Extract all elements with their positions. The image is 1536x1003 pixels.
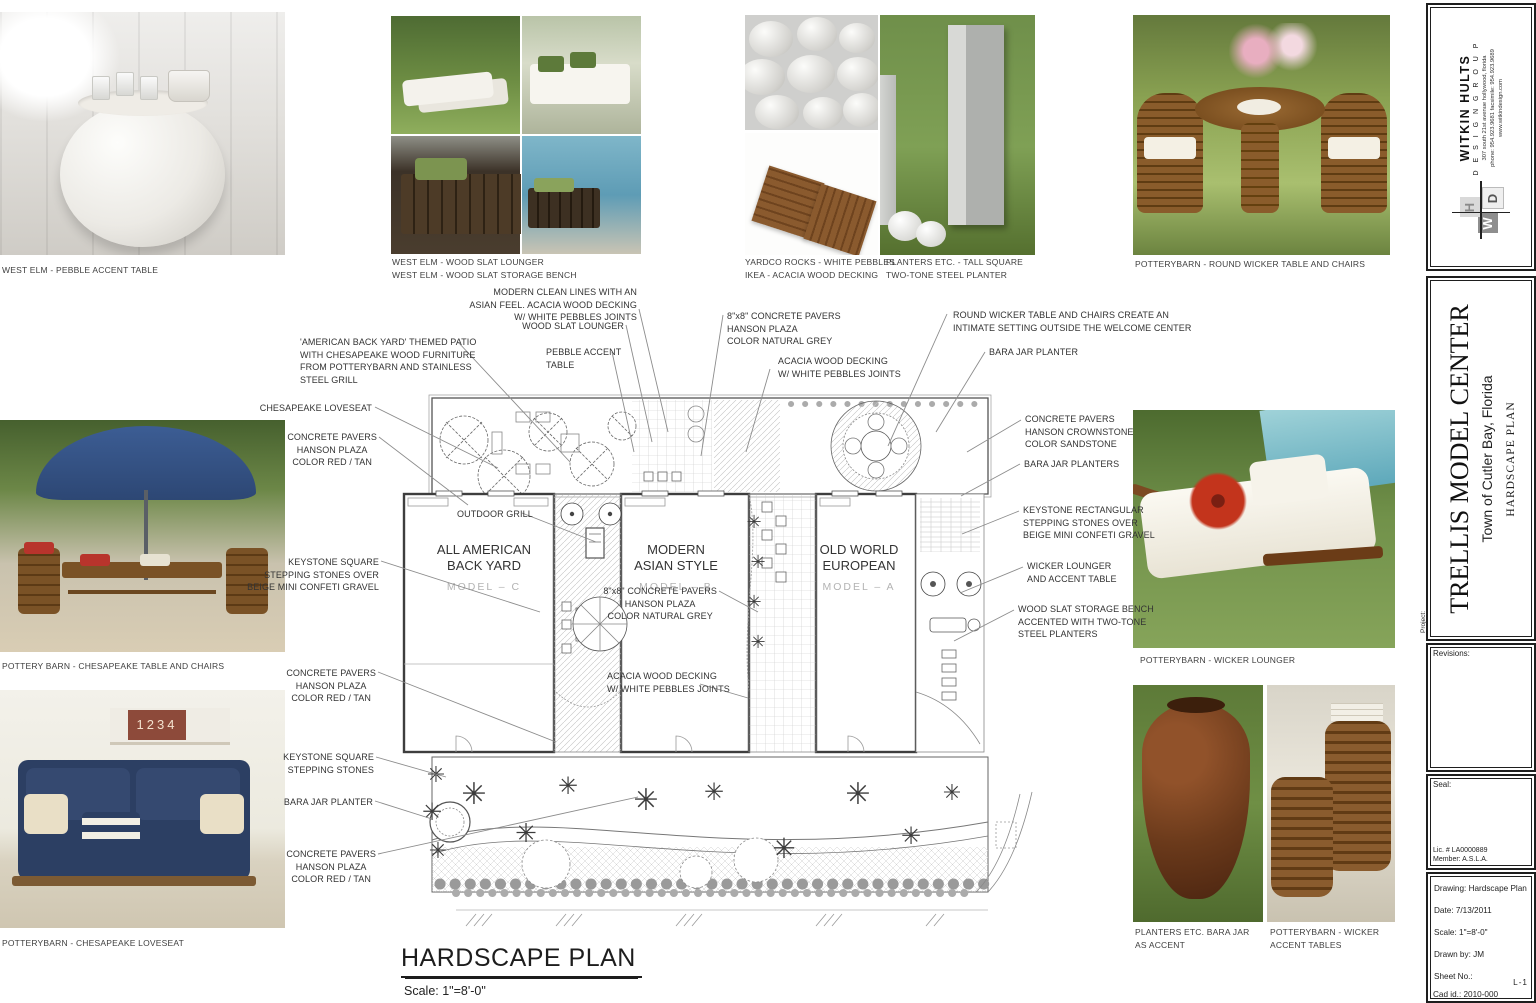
annotation-keystone-rectangular: KEYSTONE RECTANGULAR STEPPING STONES OVE… xyxy=(1023,504,1155,542)
photo-acacia-decking xyxy=(745,133,878,255)
photo-west-elm-collage xyxy=(390,15,642,255)
model-a-label: MODEL – A xyxy=(822,581,895,593)
model-a-name-2: EUROPEAN xyxy=(823,558,896,573)
photo-steel-planter xyxy=(880,15,1035,255)
svg-text:✳: ✳ xyxy=(633,784,658,817)
drawn-by: Drawn by: JM xyxy=(1434,950,1484,959)
sheet-number: L-1 xyxy=(1513,978,1528,987)
model-c-name-1: ALL AMERICAN xyxy=(437,542,531,557)
photo-pebble-accent-table xyxy=(0,12,285,255)
photo-white-pebbles xyxy=(745,15,878,130)
svg-text:✳: ✳ xyxy=(515,818,537,848)
annotation-bara-jar-planter-top: BARA JAR PLANTER xyxy=(989,346,1078,359)
firm-name: WITKIN HULTS xyxy=(1458,41,1472,176)
annotation-pavers-red-tan-1: CONCRETE PAVERS HANSON PLAZA COLOR RED /… xyxy=(287,431,377,469)
plan-scale: Scale: 1"=8'-0" xyxy=(404,984,486,998)
caption-steel-planter: PLANTERS ETC. - TALL SQUARE TWO-TONE STE… xyxy=(886,256,1023,282)
caption-pebble-table: WEST ELM - PEBBLE ACCENT TABLE xyxy=(2,264,158,277)
svg-text:✳: ✳ xyxy=(746,592,761,612)
annotation-wood-slat-lounger: WOOD SLAT LOUNGER xyxy=(522,320,624,333)
firm-website: www.witkindesign.com xyxy=(1498,41,1504,176)
photo-bara-jar xyxy=(1133,685,1263,922)
title-block-info-box: Drawing: Hardscape Plan Date: 7/13/2011 … xyxy=(1426,872,1536,1003)
glass xyxy=(140,76,158,100)
annotation-chesapeake-loveseat: CHESAPEAKE LOVESEAT xyxy=(260,402,372,415)
annotation-pavers-crownstone: CONCRETE PAVERS HANSON CROWNSTONE COLOR … xyxy=(1025,413,1134,451)
svg-text:✳: ✳ xyxy=(845,778,870,811)
cad-id: Cad id.: 2010-000 xyxy=(1433,990,1498,999)
pebble-table xyxy=(60,102,225,247)
sheet-no-label: Sheet No.: xyxy=(1434,972,1473,981)
monogram-d: D xyxy=(1482,187,1504,209)
svg-text:✳: ✳ xyxy=(901,823,921,850)
model-b-name-1: MODERN xyxy=(647,542,705,557)
svg-text:✳: ✳ xyxy=(427,762,445,787)
title-block-project-box: TRELLIS MODEL CENTER Town of Cutler Bay,… xyxy=(1426,276,1536,641)
title-block-seal-box: Seal: Lic. # LA0000889 Member: A.S.L.A. xyxy=(1426,774,1536,870)
annotation-keystone-over-gravel: KEYSTONE SQUARE STEPPING STONES OVER BEI… xyxy=(247,556,379,594)
firm-phone: phone: 954.923.9681 facsimile: 954.923.9… xyxy=(1490,41,1496,176)
annotation-bara-jar-planter-left: BARA JAR PLANTER xyxy=(284,796,373,809)
drawing-name: Drawing: Hardscape Plan xyxy=(1434,884,1527,893)
title-block-firm-box: W H D WITKIN HULTS D E S I G N G R O U P… xyxy=(1426,3,1536,271)
firm-monogram: W H D xyxy=(1458,187,1504,233)
svg-text:✳: ✳ xyxy=(558,773,578,800)
annotation-wicker-lounger-note: WICKER LOUNGER AND ACCENT TABLE xyxy=(1027,560,1117,585)
photo-daybed xyxy=(521,15,642,135)
annotation-modern-clean-lines: MODERN CLEAN LINES WITH AN ASIAN FEEL. A… xyxy=(469,286,637,324)
photo-round-wicker-table xyxy=(1133,15,1390,255)
white-pot xyxy=(168,70,210,102)
svg-text:✳: ✳ xyxy=(461,778,486,811)
monogram-h: H xyxy=(1460,197,1480,217)
annotation-themed-patio: 'AMERICAN BACK YARD' THEMED PATIO WITH C… xyxy=(300,336,476,386)
model-a-name-1: OLD WORLD xyxy=(820,542,899,557)
svg-text:✳: ✳ xyxy=(704,779,724,806)
model-b-name-2: ASIAN STYLE xyxy=(634,558,718,573)
annotation-acacia-decking-mid: ACACIA WOOD DECKING W/ WHITE PEBBLES JOI… xyxy=(607,670,730,695)
project-location: Town of Cutler Bay, Florida xyxy=(1479,286,1495,631)
caption-chesapeake-table: POTTERY BARN - CHESAPEAKE TABLE AND CHAI… xyxy=(2,660,224,673)
glass xyxy=(116,72,134,96)
sheet-title: HARDSCAPE PLAN xyxy=(1505,286,1517,631)
svg-text:✳: ✳ xyxy=(750,632,765,652)
license-number: Lic. # LA0000889 Member: A.S.L.A. xyxy=(1433,846,1488,864)
photo-chesapeake-table xyxy=(0,420,285,652)
firm-subtitle: D E S I G N G R O U P xyxy=(1473,41,1480,176)
seal-label: Seal: xyxy=(1433,780,1451,789)
drawing-date: Date: 7/13/2011 xyxy=(1434,906,1492,915)
revisions-label: Revisions: xyxy=(1433,649,1470,658)
photo-wicker-accent-tables xyxy=(1267,685,1395,922)
caption-round-wicker: POTTERYBARN - ROUND WICKER TABLE AND CHA… xyxy=(1135,258,1365,271)
plan-title: HARDSCAPE PLAN xyxy=(401,944,642,978)
firm-address: 307 south 21st avenue hollywood, florida xyxy=(1482,41,1488,176)
annotation-wood-slat-bench-note: WOOD SLAT STORAGE BENCH ACCENTED WITH TW… xyxy=(1018,603,1154,641)
caption-wicker-accent: POTTERYBARN - WICKER ACCENT TABLES xyxy=(1270,926,1379,952)
model-c-name-2: BACK YARD xyxy=(447,558,521,573)
caption-wicker-lounger: POTTERYBARN - WICKER LOUNGER xyxy=(1140,654,1295,667)
annotation-outdoor-grill: OUTDOOR GRILL xyxy=(457,508,533,521)
annotation-pavers-red-tan-3: CONCRETE PAVERS HANSON PLAZA COLOR RED /… xyxy=(286,848,376,886)
annotation-bara-jar-planters-right: BARA JAR PLANTERS xyxy=(1024,458,1119,471)
photo-wood-slat-lounger xyxy=(390,15,521,135)
annotation-round-wicker-note: ROUND WICKER TABLE AND CHAIRS CREATE AN … xyxy=(953,309,1191,334)
annotation-acacia-decking-top: ACACIA WOOD DECKING W/ WHITE PEBBLES JOI… xyxy=(778,355,901,380)
photo-bench-pool xyxy=(521,135,642,255)
project-name: TRELLIS MODEL CENTER xyxy=(1445,286,1475,631)
annotation-pebble-accent-table: PEBBLE ACCENT TABLE xyxy=(546,346,621,371)
title-block: W H D WITKIN HULTS D E S I G N G R O U P… xyxy=(1424,0,1536,1003)
annotation-keystone-square: KEYSTONE SQUARE STEPPING STONES xyxy=(283,751,374,776)
drawing-scale: Scale: 1"=8'-0" xyxy=(1434,928,1488,937)
photo-wicker-lounger xyxy=(1133,410,1395,648)
annotation-pavers-red-tan-2: CONCRETE PAVERS HANSON PLAZA COLOR RED /… xyxy=(286,667,376,705)
caption-bara-jar: PLANTERS ETC. BARA JAR AS ACCENT xyxy=(1135,926,1249,952)
project-label: Project: xyxy=(1420,611,1427,633)
photo-storage-bench xyxy=(390,135,521,255)
svg-text:✳: ✳ xyxy=(746,512,761,532)
drawing-sheet: 1234 WEST ELM - PEBBLE ACCENT TABLE WEST… xyxy=(0,0,1536,1003)
glass xyxy=(92,76,110,100)
svg-text:✳: ✳ xyxy=(943,780,961,805)
caption-west-elm: WEST ELM - WOOD SLAT LOUNGER WEST ELM - … xyxy=(392,256,577,282)
caption-pebbles: YARDCO ROCKS - WHITE PEBBLES IKEA - ACAC… xyxy=(745,256,895,282)
photo-chesapeake-loveseat: 1234 xyxy=(0,690,285,928)
svg-text:✳: ✳ xyxy=(772,833,795,864)
numbered-box: 1234 xyxy=(128,710,186,740)
svg-text:✳: ✳ xyxy=(429,838,447,863)
title-block-revisions-box: Revisions: xyxy=(1426,643,1536,772)
model-c-label: MODEL – C xyxy=(447,581,521,593)
annotation-pavers-natural-grey-top: 8"x8" CONCRETE PAVERS HANSON PLAZA COLOR… xyxy=(727,310,841,348)
caption-chesapeake-loveseat: POTTERYBARN - CHESAPEAKE LOVESEAT xyxy=(2,937,184,950)
annotation-pavers-natural-grey-mid: 8"x8" CONCRETE PAVERS HANSON PLAZA COLOR… xyxy=(603,585,717,623)
svg-text:✳: ✳ xyxy=(422,799,442,826)
svg-text:✳: ✳ xyxy=(750,552,765,572)
